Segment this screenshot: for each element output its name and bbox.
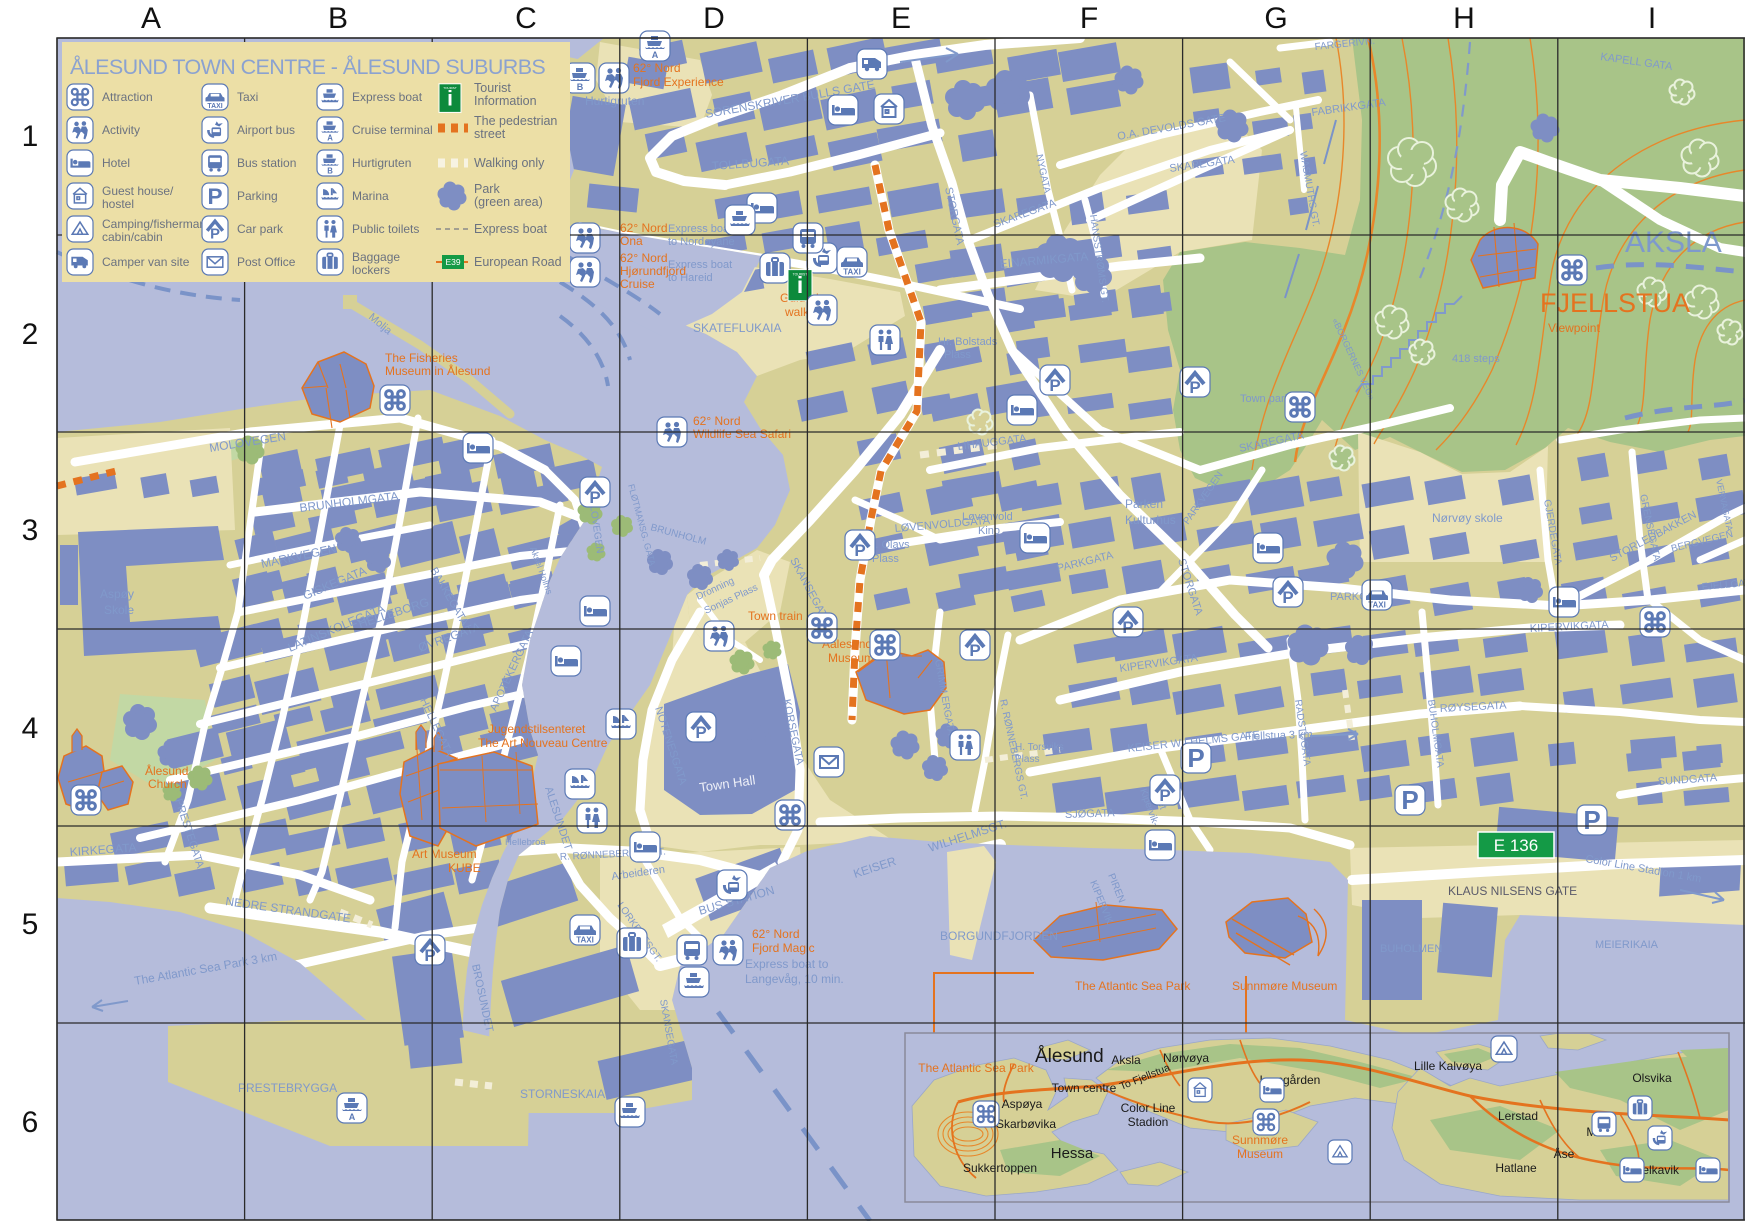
svg-text:Fjord Magic: Fjord Magic xyxy=(752,941,815,955)
svg-text:P: P xyxy=(1189,378,1200,397)
svg-text:1: 1 xyxy=(22,120,39,153)
svg-text:Church: Church xyxy=(148,777,187,791)
svg-text:P: P xyxy=(1187,743,1204,773)
svg-text:PRESTEBRYGGA: PRESTEBRYGGA xyxy=(238,1081,337,1095)
svg-text:to Nordøyane: to Nordøyane xyxy=(668,236,735,248)
svg-text:The Atlantic Sea Park: The Atlantic Sea Park xyxy=(918,1061,1034,1075)
svg-text:P: P xyxy=(854,541,865,560)
svg-text:H: H xyxy=(1453,2,1475,35)
svg-text:Taxi: Taxi xyxy=(237,90,258,104)
svg-text:Express boat: Express boat xyxy=(668,223,732,235)
svg-text:Express boat: Express boat xyxy=(474,222,547,236)
svg-text:Langevåg, 10 min.: Langevåg, 10 min. xyxy=(745,972,844,986)
svg-text:Viewpoint: Viewpoint xyxy=(1548,321,1600,335)
svg-text:C: C xyxy=(515,2,537,35)
svg-text:SKATEFLUKAIA: SKATEFLUKAIA xyxy=(693,321,781,335)
svg-text:TOURIST: TOURIST xyxy=(443,86,457,90)
svg-text:Museum: Museum xyxy=(828,651,874,665)
svg-text:Town centre: Town centre xyxy=(1052,1081,1117,1095)
svg-text:Ålesund: Ålesund xyxy=(145,763,188,778)
svg-text:A: A xyxy=(652,50,659,60)
svg-text:Kino: Kino xyxy=(978,525,1000,537)
svg-text:Parken: Parken xyxy=(1125,497,1163,511)
svg-text:E: E xyxy=(891,2,911,35)
svg-text:A: A xyxy=(349,1112,356,1122)
svg-text:hostel: hostel xyxy=(102,197,134,211)
svg-text:Public toilets: Public toilets xyxy=(352,222,419,236)
svg-text:P: P xyxy=(589,488,600,507)
svg-text:SJØGATA: SJØGATA xyxy=(1065,807,1116,821)
svg-text:The Art Nouveau Centre: The Art Nouveau Centre xyxy=(478,736,608,750)
svg-text:Plass: Plass xyxy=(1015,754,1039,765)
svg-text:Camping/fisherman's: Camping/fisherman's xyxy=(102,217,214,231)
svg-text:Plass: Plass xyxy=(944,349,971,361)
svg-text:62° Nord: 62° Nord xyxy=(620,251,668,265)
svg-text:The pedestrian: The pedestrian xyxy=(474,114,557,128)
svg-text:Town train: Town train xyxy=(748,609,803,623)
svg-text:i: i xyxy=(447,87,453,110)
svg-text:Fjellstua 3 km: Fjellstua 3 km xyxy=(1245,729,1313,743)
svg-text:Løvenvold: Løvenvold xyxy=(962,511,1013,523)
svg-text:Town park: Town park xyxy=(1240,393,1291,405)
svg-text:Aksla: Aksla xyxy=(1111,1053,1141,1067)
svg-text:Tourist: Tourist xyxy=(474,81,511,95)
svg-text:Olsvika: Olsvika xyxy=(1632,1071,1672,1085)
svg-text:Art Museum: Art Museum xyxy=(412,847,477,861)
svg-text:Airport bus: Airport bus xyxy=(237,123,295,137)
svg-text:Hellebroa: Hellebroa xyxy=(505,837,546,848)
svg-text:Museum in Ålesund: Museum in Ålesund xyxy=(385,363,490,378)
svg-text:62° Nord: 62° Nord xyxy=(752,927,800,941)
svg-text:Lille Kalvøya: Lille Kalvøya xyxy=(1414,1059,1482,1073)
svg-text:Plass: Plass xyxy=(872,553,899,565)
svg-text:The Atlantic Sea Park: The Atlantic Sea Park xyxy=(1075,979,1191,993)
svg-text:Cruise terminal: Cruise terminal xyxy=(352,123,433,137)
svg-text:Post Office: Post Office xyxy=(237,255,296,269)
svg-text:Ålesund: Ålesund xyxy=(1035,1046,1104,1067)
svg-text:Baggage: Baggage xyxy=(352,250,400,264)
svg-text:P: P xyxy=(1282,588,1293,607)
svg-text:Skole: Skole xyxy=(104,603,134,617)
svg-text:Park: Park xyxy=(474,182,500,196)
svg-text:Hr. Bolstads: Hr. Bolstads xyxy=(938,336,998,348)
svg-text:KUBE: KUBE xyxy=(448,861,481,875)
svg-text:F: F xyxy=(1080,2,1098,35)
svg-text:Aspøy: Aspøy xyxy=(100,587,134,601)
svg-text:Hjørundfjord: Hjørundfjord xyxy=(620,264,686,278)
svg-text:E 136: E 136 xyxy=(1494,836,1538,855)
svg-text:Wildlife Sea Safari: Wildlife Sea Safari xyxy=(693,427,791,441)
svg-text:P: P xyxy=(1122,618,1133,637)
svg-text:Jugendstilsenteret: Jugendstilsenteret xyxy=(488,722,586,736)
svg-text:B: B xyxy=(328,2,348,35)
svg-text:European Road: European Road xyxy=(474,255,562,269)
svg-text:5: 5 xyxy=(22,908,39,941)
svg-text:lockers: lockers xyxy=(352,263,390,277)
svg-text:Hurtigruten: Hurtigruten xyxy=(352,156,411,170)
svg-text:BUHOLMEN: BUHOLMEN xyxy=(1380,943,1442,955)
svg-text:P: P xyxy=(210,227,220,243)
svg-text:6: 6 xyxy=(22,1106,39,1139)
svg-text:street: street xyxy=(474,127,506,141)
svg-text:AKSLA: AKSLA xyxy=(1625,226,1722,259)
svg-text:G: G xyxy=(1264,2,1287,35)
svg-text:Sunnmøre Museum: Sunnmøre Museum xyxy=(1232,979,1337,993)
svg-text:Car park: Car park xyxy=(237,222,284,236)
svg-text:TAXI: TAXI xyxy=(207,103,222,110)
svg-text:(green area): (green area) xyxy=(474,195,543,209)
svg-text:TAXI: TAXI xyxy=(576,936,594,945)
svg-text:Hessa: Hessa xyxy=(1051,1145,1094,1162)
svg-text:MEIERIKAIA: MEIERIKAIA xyxy=(1595,939,1659,951)
svg-text:P: P xyxy=(1159,786,1170,805)
svg-text:B: B xyxy=(327,166,333,175)
svg-text:The Fisheries: The Fisheries xyxy=(385,351,458,365)
svg-text:Stadion: Stadion xyxy=(1128,1115,1169,1129)
svg-text:4: 4 xyxy=(22,712,39,745)
svg-text:Kulturhus: Kulturhus xyxy=(1125,513,1176,527)
svg-text:B: B xyxy=(577,82,584,92)
svg-text:P: P xyxy=(1049,376,1060,395)
svg-text:STORNESKAIA: STORNESKAIA xyxy=(520,1087,605,1101)
svg-text:62° Nord: 62° Nord xyxy=(633,61,681,75)
svg-text:A: A xyxy=(141,2,161,35)
svg-text:Åse: Åse xyxy=(1554,1146,1575,1161)
svg-text:Information: Information xyxy=(474,94,537,108)
svg-text:Walking only: Walking only xyxy=(474,156,545,170)
svg-text:Camper van site: Camper van site xyxy=(102,255,190,269)
svg-text:Bus station: Bus station xyxy=(237,156,296,170)
svg-text:P: P xyxy=(1583,805,1600,835)
svg-text:FJELLSTUA: FJELLSTUA xyxy=(1540,288,1690,318)
svg-text:Color Line: Color Line xyxy=(1121,1101,1176,1115)
svg-text:Parking: Parking xyxy=(237,189,278,203)
svg-text:Hatlane: Hatlane xyxy=(1495,1161,1537,1175)
svg-text:Attraction: Attraction xyxy=(102,90,153,104)
svg-text:BORGUNDFJORDEN: BORGUNDFJORDEN xyxy=(940,929,1058,943)
svg-text:H. Torsviks: H. Torsviks xyxy=(1015,742,1064,753)
svg-text:P: P xyxy=(695,723,706,742)
svg-text:D: D xyxy=(703,2,725,35)
svg-text:3: 3 xyxy=(22,514,39,547)
svg-text:ÅLESUND TOWN CENTRE - ÅLESUND: ÅLESUND TOWN CENTRE - ÅLESUND SUBURBS xyxy=(70,55,545,79)
svg-text:P: P xyxy=(969,641,980,660)
svg-text:Lerstad: Lerstad xyxy=(1498,1109,1538,1123)
svg-text:Aspøya: Aspøya xyxy=(1002,1097,1043,1111)
svg-text:P: P xyxy=(424,946,435,965)
svg-text:Sukkertoppen: Sukkertoppen xyxy=(963,1161,1037,1175)
svg-text:A: A xyxy=(327,133,333,142)
svg-text:Express boat: Express boat xyxy=(352,90,423,104)
svg-text:Skarbøvika: Skarbøvika xyxy=(996,1117,1056,1131)
svg-text:P: P xyxy=(207,184,222,209)
svg-text:Guest house/: Guest house/ xyxy=(102,184,174,198)
svg-text:TOURIST: TOURIST xyxy=(793,272,808,276)
svg-text:Museum: Museum xyxy=(1237,1147,1283,1161)
svg-text:2: 2 xyxy=(22,318,39,351)
svg-text:I: I xyxy=(1648,2,1656,35)
svg-text:418 steps: 418 steps xyxy=(1452,353,1500,365)
svg-text:P: P xyxy=(1401,785,1418,815)
svg-text:Marina: Marina xyxy=(352,189,389,203)
svg-text:Hurtigruten: Hurtigruten xyxy=(585,94,644,108)
svg-text:Activity: Activity xyxy=(102,123,140,137)
svg-text:TAXI: TAXI xyxy=(843,268,861,277)
svg-text:62° Nord: 62° Nord xyxy=(693,414,741,428)
svg-text:Cruise: Cruise xyxy=(620,277,655,291)
svg-text:Ona: Ona xyxy=(620,234,643,248)
svg-text:Express boat to: Express boat to xyxy=(745,957,829,971)
svg-text:Fjord Experience: Fjord Experience xyxy=(633,75,724,89)
svg-text:Nørvøy skole: Nørvøy skole xyxy=(1432,511,1503,525)
svg-text:62° Nord: 62° Nord xyxy=(620,221,668,235)
svg-text:cabin/cabin: cabin/cabin xyxy=(102,230,163,244)
svg-text:E39: E39 xyxy=(445,257,460,267)
svg-text:Nørvøya: Nørvøya xyxy=(1163,1051,1209,1065)
svg-text:Hotel: Hotel xyxy=(102,156,130,170)
